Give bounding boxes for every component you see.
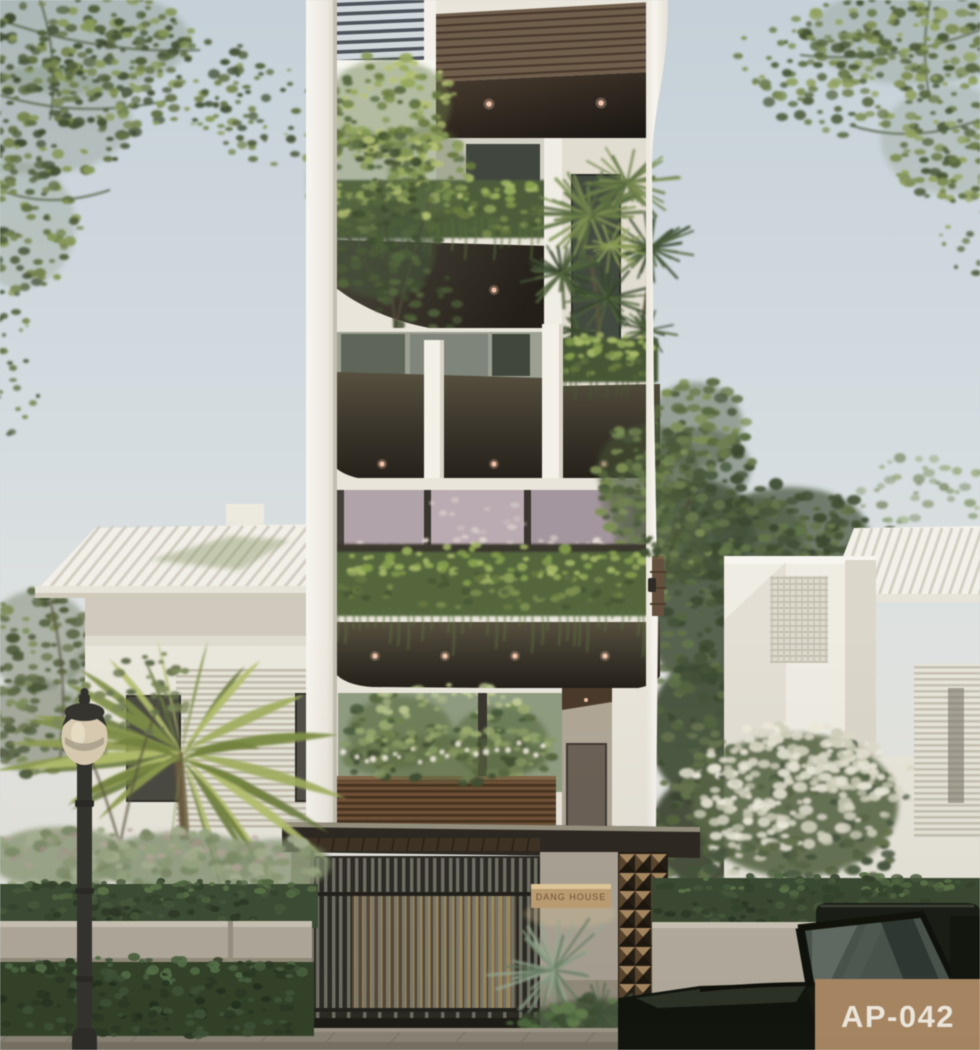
svg-text:DANG HOUSE: DANG HOUSE [536,892,607,902]
svg-text:AP-042: AP-042 [841,999,955,1034]
